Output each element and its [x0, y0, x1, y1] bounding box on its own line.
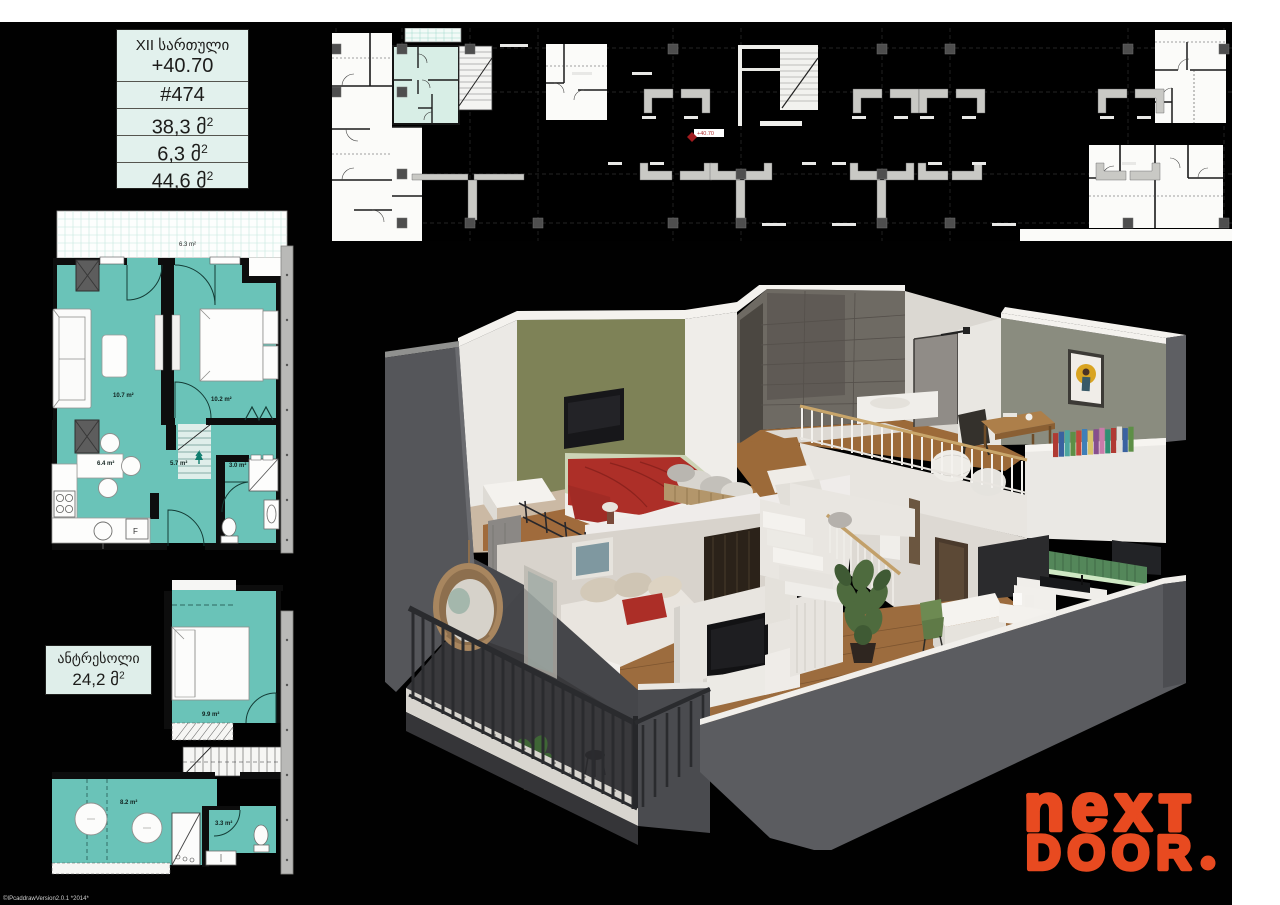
svg-text:3.0 m²: 3.0 m²: [229, 462, 246, 469]
svg-text:6.3 m²: 6.3 m²: [179, 242, 196, 248]
svg-text:DOOR: DOOR: [1026, 827, 1198, 880]
svg-text:6.4 m²: 6.4 m²: [97, 460, 114, 467]
svg-text:9.9 m²: 9.9 m²: [202, 711, 219, 718]
svg-text:F: F: [133, 527, 138, 536]
svg-text:8.2 m²: 8.2 m²: [120, 799, 137, 806]
svg-text:10.2 m²: 10.2 m²: [211, 396, 232, 403]
svg-text:+40.70: +40.70: [697, 131, 714, 137]
svg-text:5.7 m²: 5.7 m²: [170, 460, 187, 467]
svg-text:3.3 m²: 3.3 m²: [215, 820, 232, 827]
svg-text:10.7 m²: 10.7 m²: [113, 392, 134, 399]
